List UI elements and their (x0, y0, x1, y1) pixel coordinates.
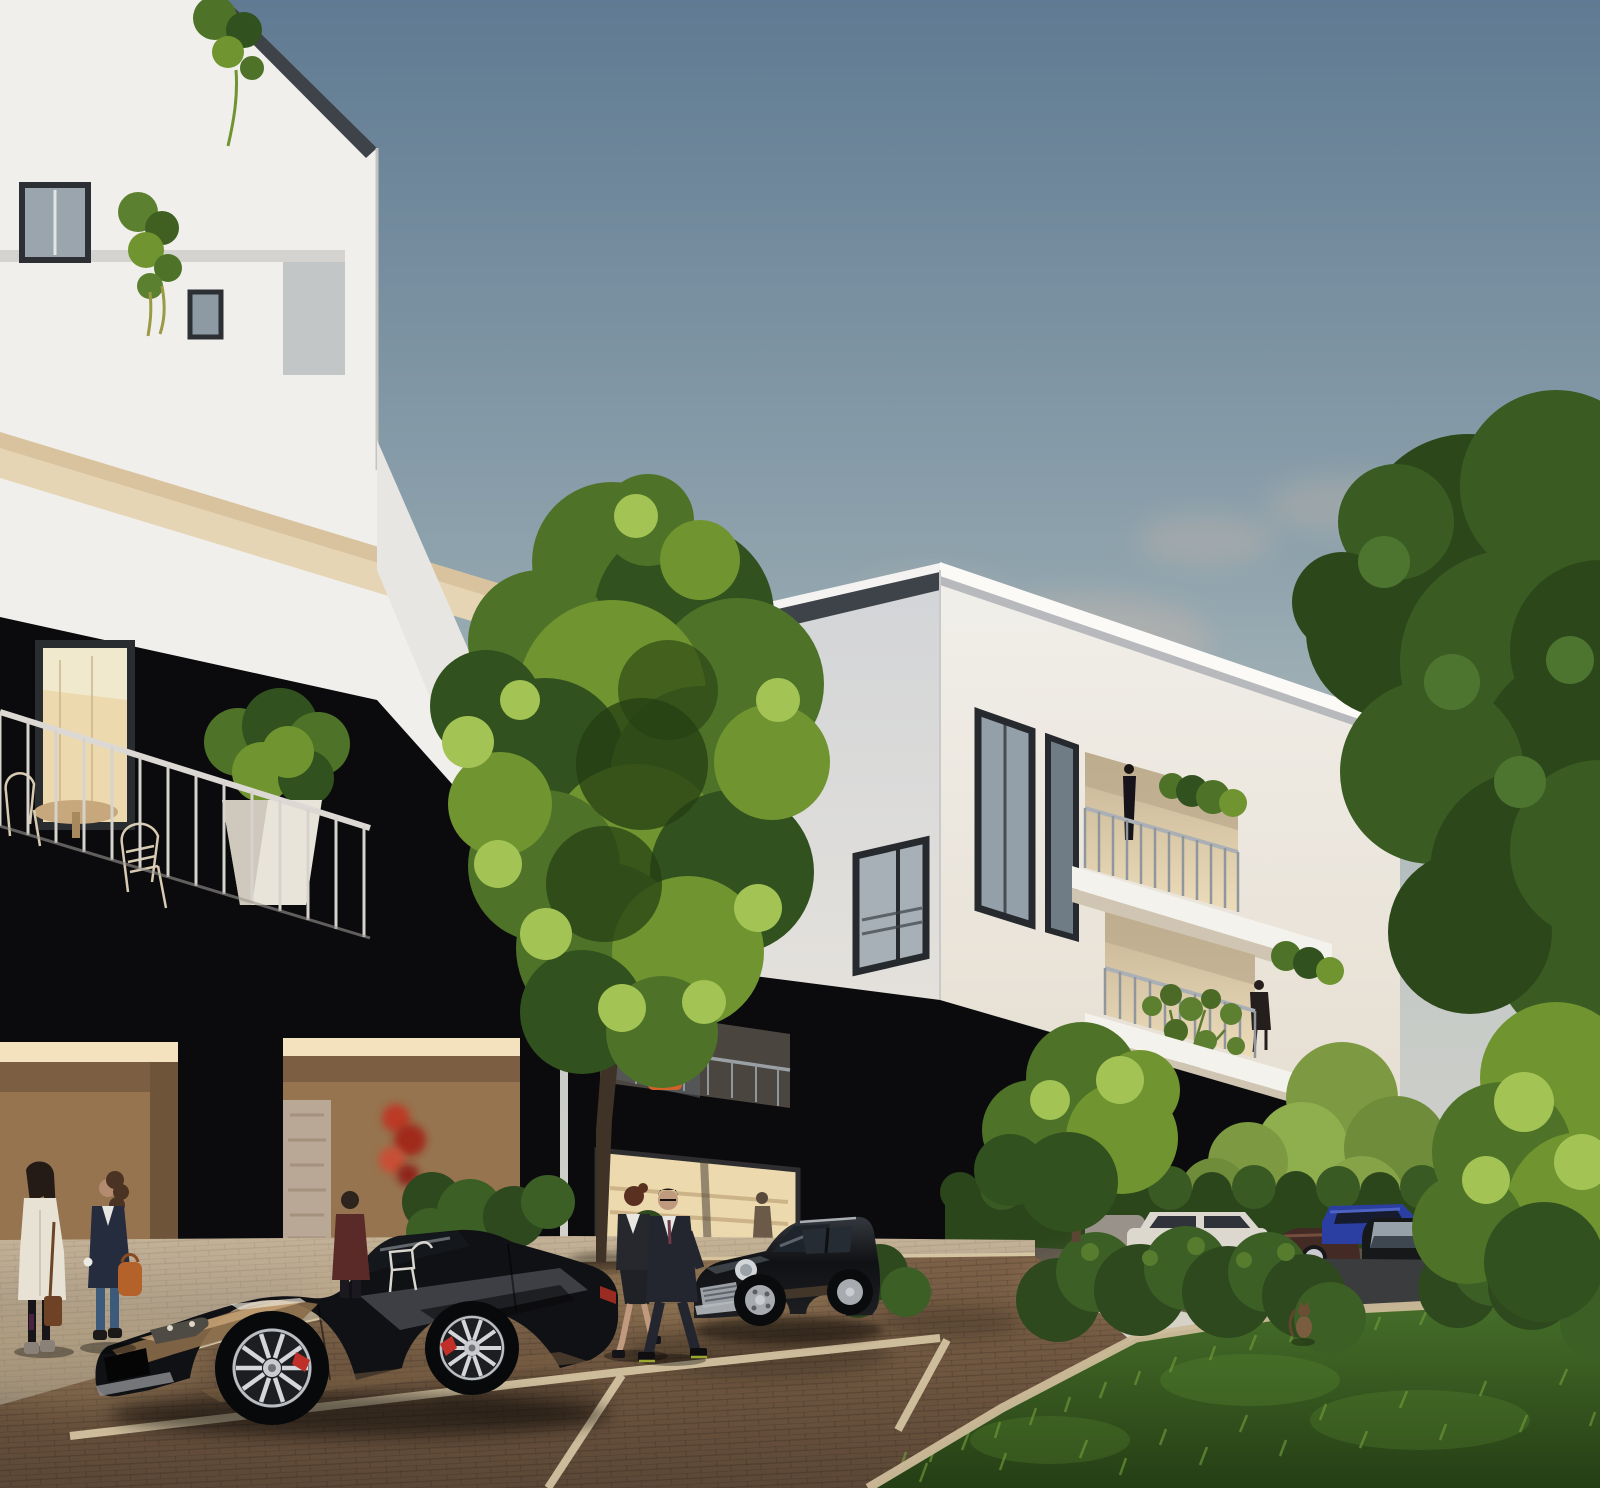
cloud (1135, 514, 1275, 566)
window (22, 185, 88, 260)
window (190, 292, 221, 337)
front-wheel (215, 1311, 329, 1425)
architectural-rendering (0, 0, 1600, 1488)
glass-balustrade (283, 262, 345, 375)
window-door (1048, 737, 1076, 938)
stone-wall (283, 1100, 331, 1252)
coffee-cup (84, 1258, 93, 1267)
rendering-stage (0, 0, 1600, 1488)
window (856, 840, 926, 972)
rear-wheel (425, 1301, 519, 1395)
window-tall (978, 712, 1032, 925)
orange-bag (118, 1262, 142, 1296)
brown-bag (44, 1296, 62, 1326)
